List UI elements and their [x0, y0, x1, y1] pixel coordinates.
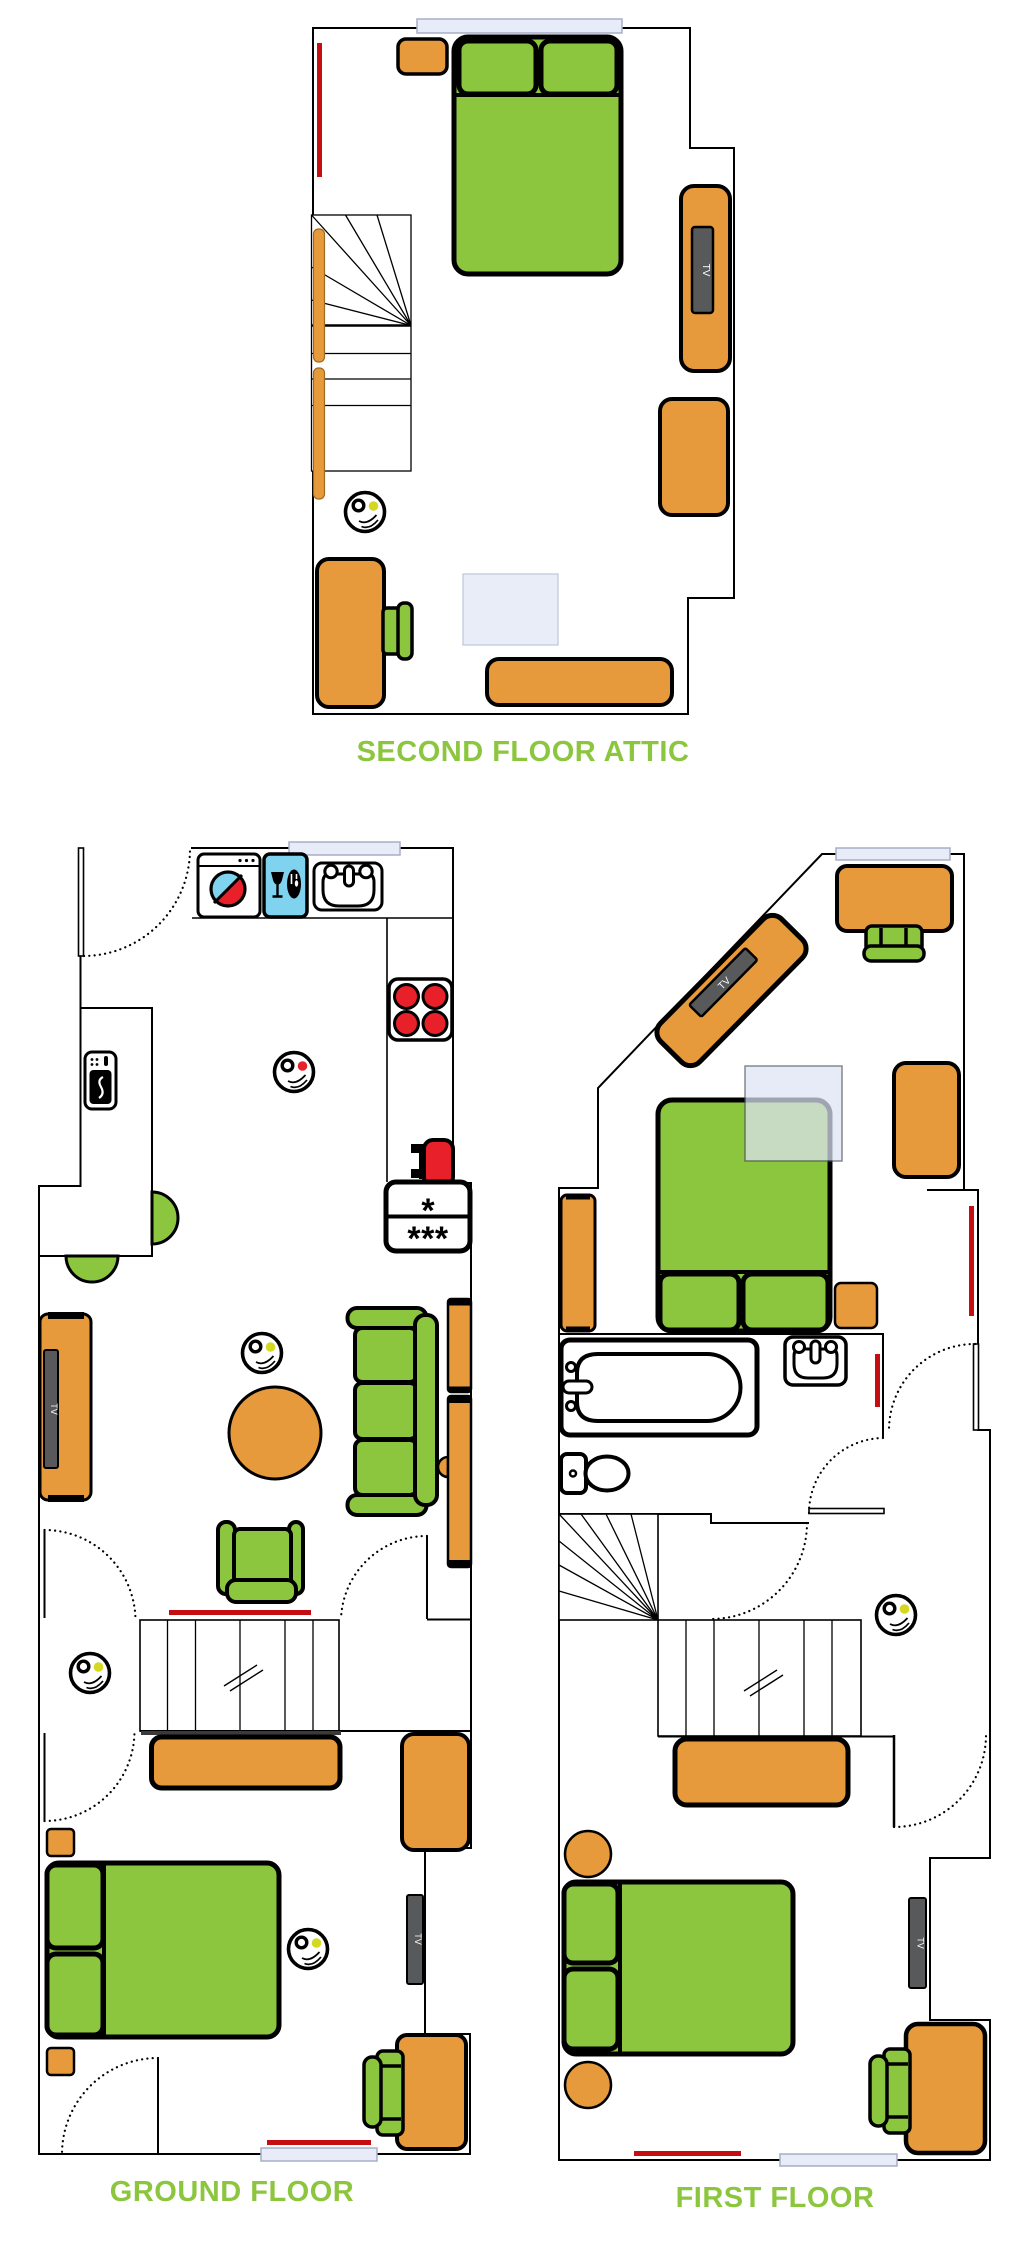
svg-text:FIRST FLOOR: FIRST FLOOR: [676, 2182, 875, 2214]
svg-text:TV: TV: [916, 1937, 926, 1949]
svg-text:***: ***: [407, 1220, 448, 1258]
svg-text:TV: TV: [49, 1403, 59, 1415]
svg-text:GROUND FLOOR: GROUND FLOOR: [110, 2176, 354, 2208]
svg-text:TV: TV: [413, 1933, 423, 1945]
svg-text:SECOND FLOOR ATTIC: SECOND FLOOR ATTIC: [357, 736, 690, 768]
svg-text:TV: TV: [700, 264, 711, 277]
